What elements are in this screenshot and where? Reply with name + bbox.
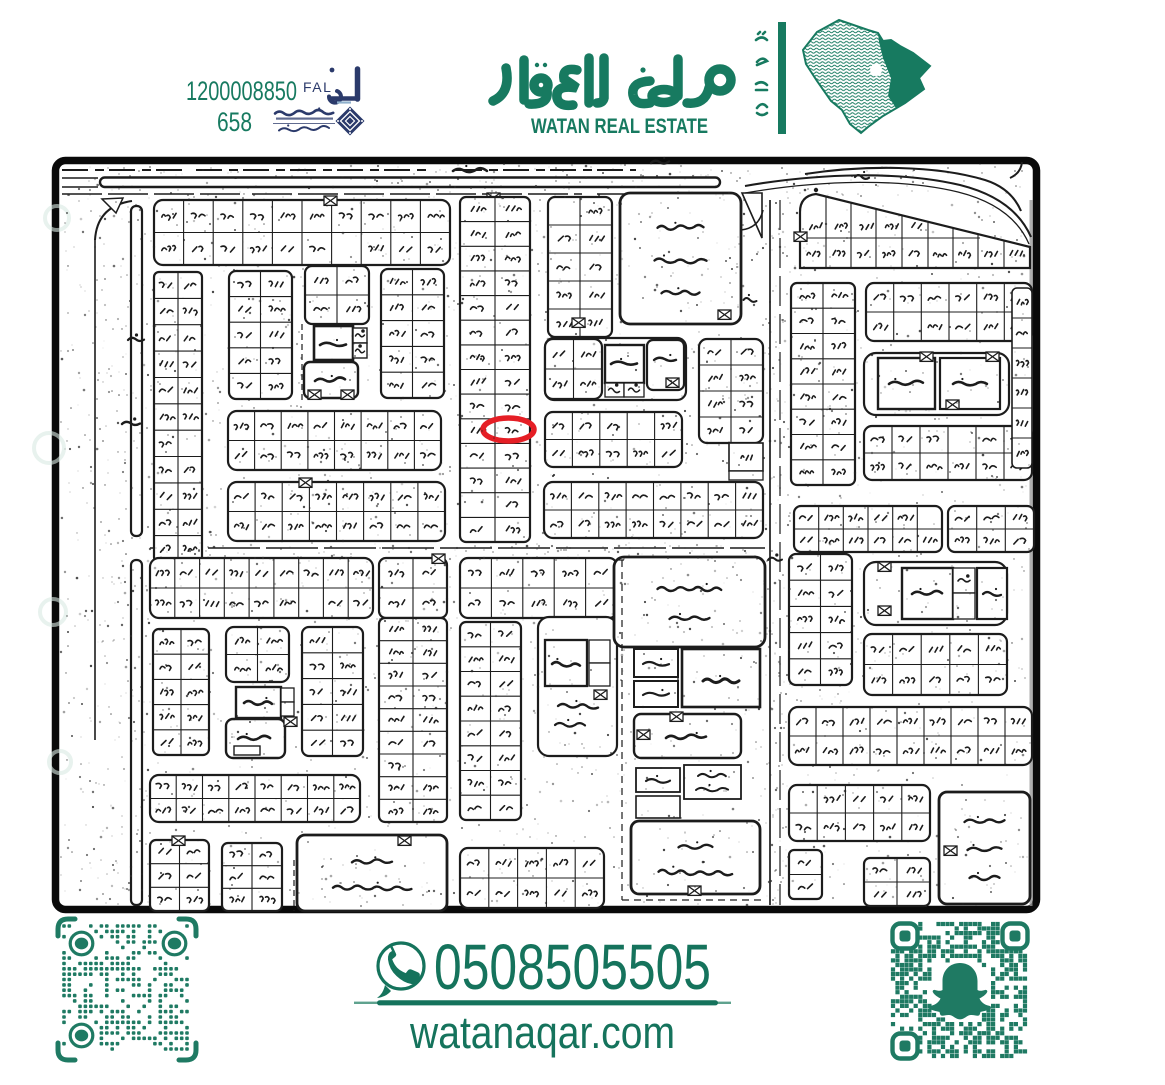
svg-text:0508505505: 0508505505 xyxy=(434,931,711,1003)
svg-text:watanaqar.com: watanaqar.com xyxy=(409,1007,675,1058)
svg-text:FAL: FAL xyxy=(303,79,332,95)
svg-text:658: 658 xyxy=(217,107,252,137)
svg-text:1200008850: 1200008850 xyxy=(186,76,297,106)
svg-text:WATAN REAL ESTATE: WATAN REAL ESTATE xyxy=(531,115,708,138)
